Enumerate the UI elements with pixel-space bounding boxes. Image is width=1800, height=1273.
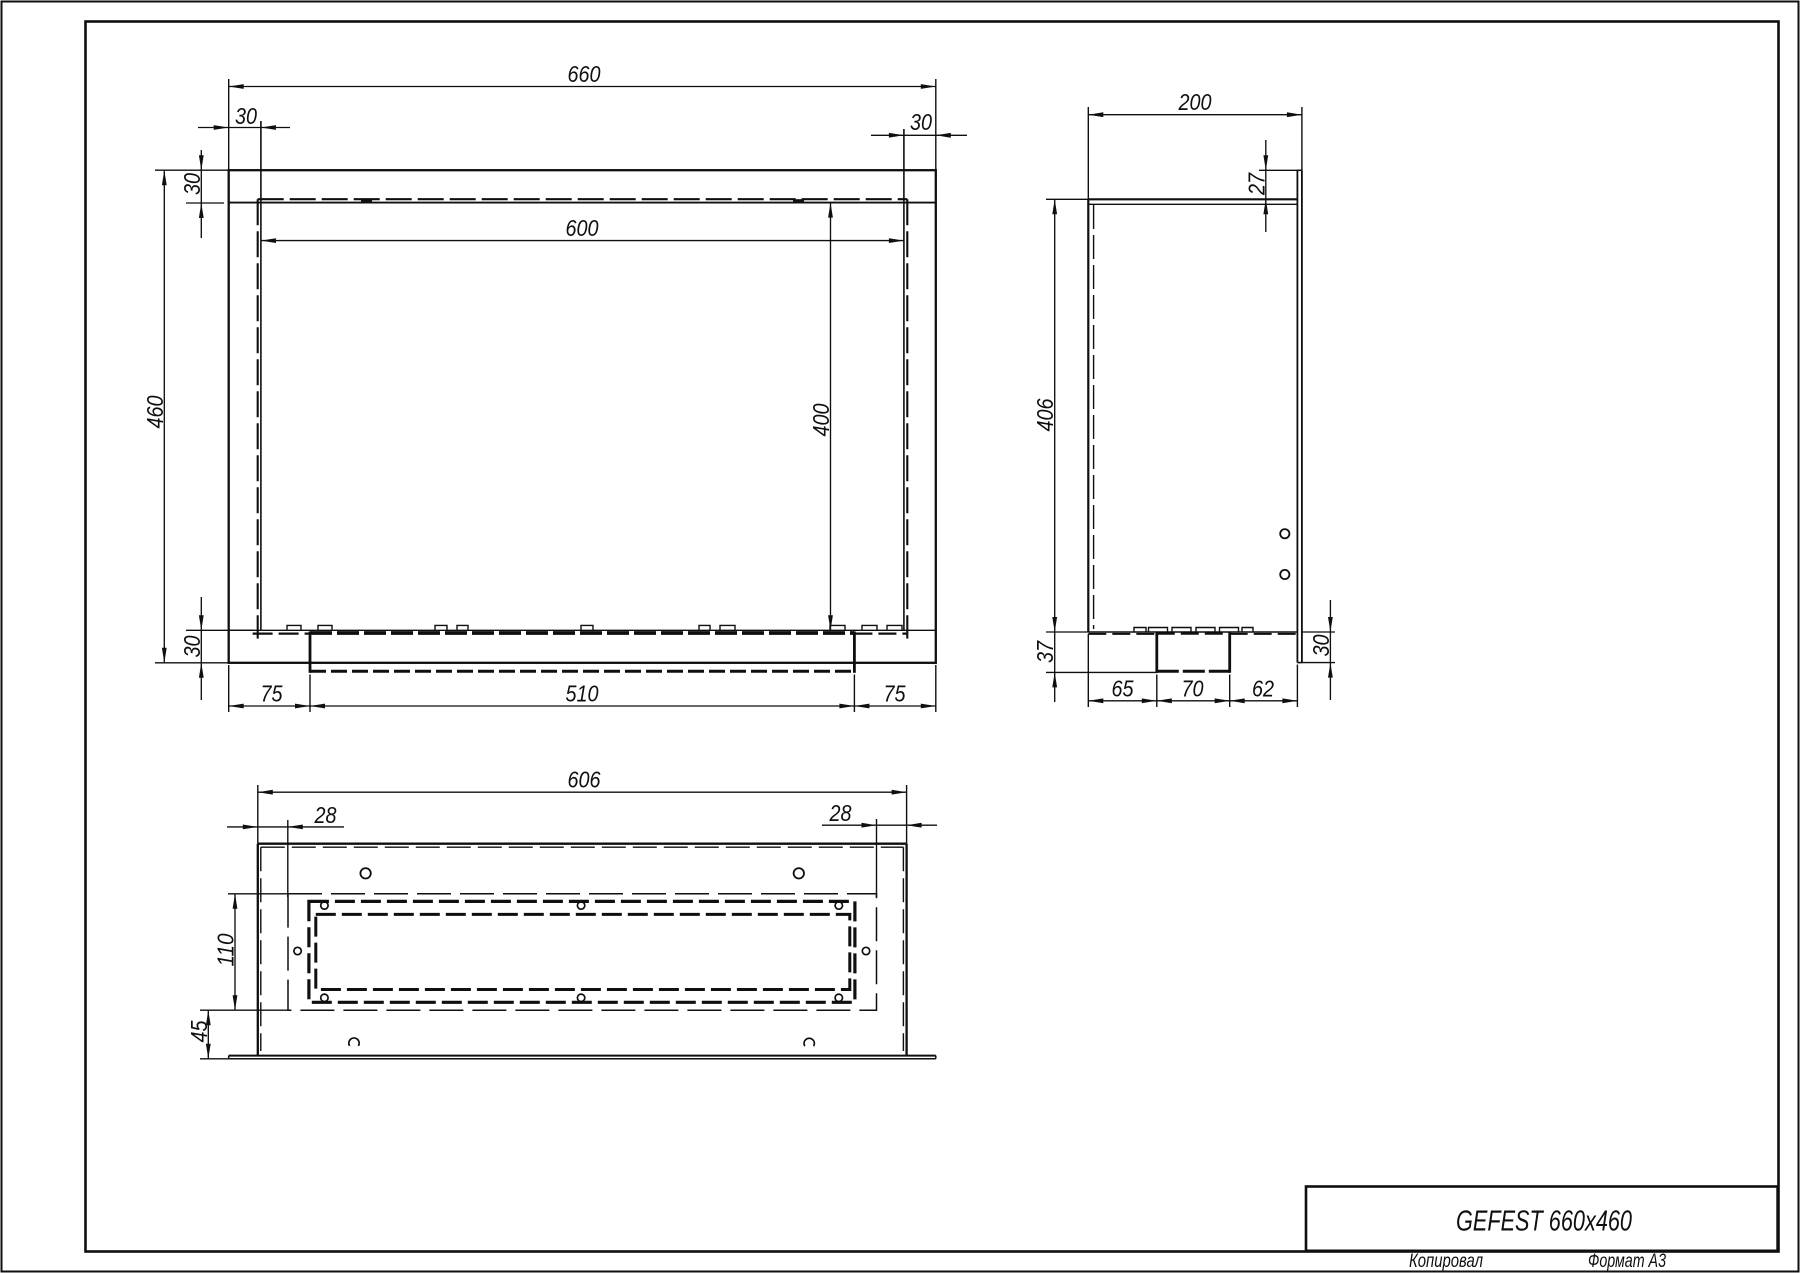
svg-text:110: 110 — [213, 933, 239, 966]
svg-text:28: 28 — [314, 802, 337, 828]
svg-text:200: 200 — [1178, 89, 1212, 115]
svg-text:30: 30 — [910, 109, 932, 135]
svg-text:400: 400 — [808, 403, 834, 436]
svg-text:460: 460 — [142, 395, 168, 428]
svg-text:30: 30 — [179, 635, 205, 657]
svg-text:Формат А3: Формат А3 — [1588, 1251, 1666, 1272]
svg-text:75: 75 — [884, 681, 906, 707]
svg-text:27: 27 — [1243, 172, 1269, 196]
svg-text:45: 45 — [186, 1020, 212, 1042]
svg-text:65: 65 — [1112, 675, 1134, 701]
svg-text:660: 660 — [568, 61, 601, 87]
svg-text:62: 62 — [1252, 675, 1274, 701]
svg-text:37: 37 — [1032, 640, 1058, 663]
svg-text:75: 75 — [261, 681, 283, 707]
svg-text:Копировал: Копировал — [1409, 1251, 1483, 1272]
svg-text:606: 606 — [568, 767, 601, 793]
svg-text:510: 510 — [566, 681, 599, 707]
svg-text:GEFEST 660x460: GEFEST 660x460 — [1456, 1206, 1632, 1238]
svg-text:30: 30 — [235, 103, 257, 129]
svg-text:30: 30 — [1308, 634, 1334, 656]
svg-text:70: 70 — [1182, 675, 1204, 701]
svg-text:28: 28 — [829, 800, 852, 826]
svg-text:30: 30 — [179, 173, 205, 195]
svg-text:406: 406 — [1032, 398, 1058, 431]
svg-text:600: 600 — [566, 215, 599, 241]
